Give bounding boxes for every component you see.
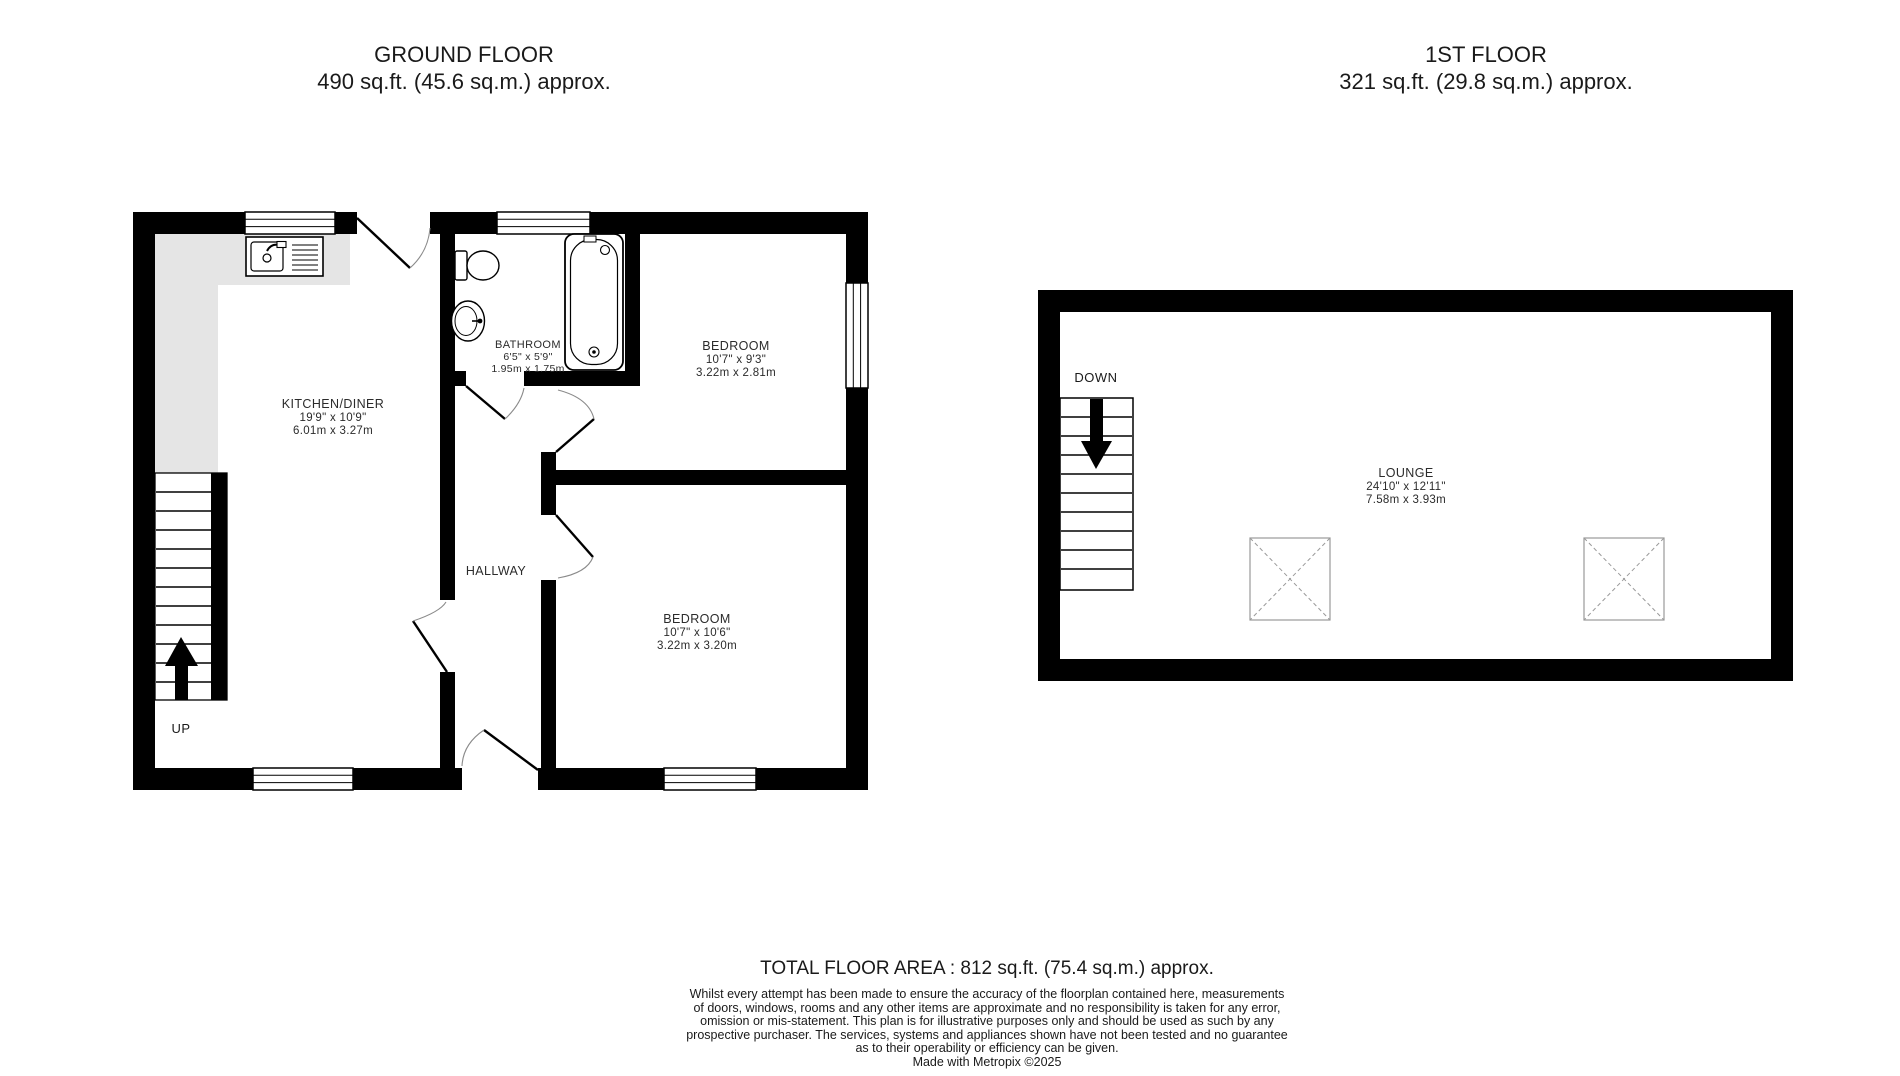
staircase-up: UP xyxy=(155,473,227,736)
bedroom-bottom-label: BEDROOM xyxy=(663,612,730,626)
toilet-icon xyxy=(455,251,499,280)
disclaimer-line: as to their operability or efficiency ca… xyxy=(637,1042,1337,1056)
kitchen-diner-imperial: 19'9" x 10'9" xyxy=(300,412,367,424)
lounge-label: LOUNGE xyxy=(1378,466,1433,480)
ground-floor-plan: UP xyxy=(133,212,868,790)
door-back xyxy=(357,218,430,268)
hallway-label: HALLWAY xyxy=(466,564,526,578)
bedroom-bottom-metric: 3.22m x 3.20m xyxy=(657,640,737,652)
window xyxy=(253,768,353,790)
window xyxy=(497,212,590,234)
door-bathroom xyxy=(466,386,524,419)
bedroom-bottom-imperial: 10'7" x 10'6" xyxy=(664,627,731,639)
bathroom-imperial: 6'5" x 5'9" xyxy=(503,351,552,363)
door-kitchen-hallway xyxy=(413,602,447,672)
door-front xyxy=(462,730,538,770)
door-bedroom-top xyxy=(556,390,594,452)
staircase-down: DOWN xyxy=(1060,370,1133,590)
dashed-cross-box xyxy=(1250,538,1330,620)
dashed-cross-boxes xyxy=(1250,538,1664,620)
first-floor-plan: DOWN LOUNGE 24'10" x 12'11" 7. xyxy=(1038,290,1793,681)
kitchen-diner-metric: 6.01m x 3.27m xyxy=(293,425,373,437)
disclaimer-line: prospective purchaser. The services, sys… xyxy=(637,1029,1337,1043)
window xyxy=(245,212,335,234)
window xyxy=(664,768,756,790)
disclaimer-line: Whilst every attempt has been made to en… xyxy=(637,988,1337,1002)
bathroom-metric: 1.95m x 1.75m xyxy=(491,363,564,375)
floorplan-page: GROUND FLOOR 490 sq.ft. (45.6 sq.m.) app… xyxy=(0,0,1900,1076)
dashed-cross-box xyxy=(1584,538,1664,620)
bathroom-label: BATHROOM xyxy=(495,339,561,351)
window xyxy=(846,283,868,388)
basin-icon xyxy=(452,301,485,341)
disclaimer: Whilst every attempt has been made to en… xyxy=(637,988,1337,1070)
stairs-up-label: UP xyxy=(171,721,190,736)
lounge-imperial: 24'10" x 12'11" xyxy=(1366,481,1446,493)
kitchen-diner-label: KITCHEN/DINER xyxy=(282,397,384,411)
floorplan-drawing: UP xyxy=(0,0,1900,1076)
total-floor-area: TOTAL FLOOR AREA : 812 sq.ft. (75.4 sq.m… xyxy=(687,958,1287,980)
bedroom-top-metric: 3.22m x 2.81m xyxy=(696,367,776,379)
disclaimer-line: of doors, windows, rooms and any other i… xyxy=(637,1002,1337,1016)
lounge-metric: 7.58m x 3.93m xyxy=(1366,494,1446,506)
metropix-credit: Made with Metropix ©2025 xyxy=(637,1056,1337,1070)
first-floor-room-labels: LOUNGE 24'10" x 12'11" 7.58m x 3.93m xyxy=(1366,466,1446,506)
ground-floor-doors xyxy=(357,218,594,770)
stairs-down-label: DOWN xyxy=(1074,370,1117,385)
bedroom-top-imperial: 10'7" x 9'3" xyxy=(706,354,766,366)
bedroom-top-label: BEDROOM xyxy=(702,339,769,353)
bathtub-icon xyxy=(565,234,623,370)
ground-floor-windows xyxy=(245,212,868,790)
kitchen-sink-icon xyxy=(246,237,323,276)
ground-floor-walls xyxy=(133,212,868,790)
door-bedroom-bottom xyxy=(556,515,593,578)
disclaimer-line: omission or mis-statement. This plan is … xyxy=(637,1015,1337,1029)
